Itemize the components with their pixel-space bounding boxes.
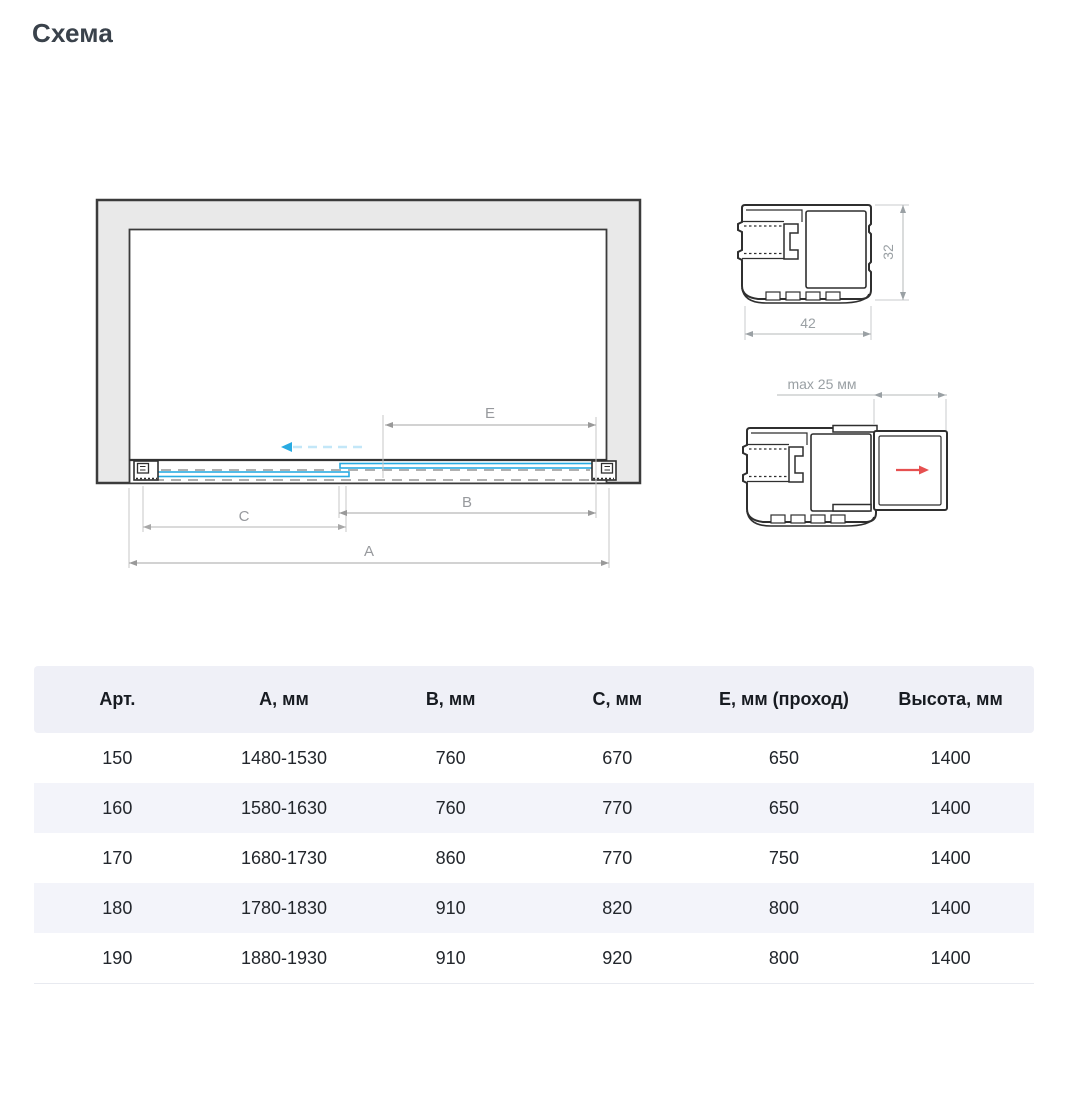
cell-e: 650 <box>701 798 868 819</box>
page-title: Схема <box>32 18 113 49</box>
profile-diagrams: 32 42 <box>700 185 990 540</box>
cell-e: 800 <box>701 948 868 969</box>
cell-b: 760 <box>367 798 534 819</box>
table-row: 150 1480-1530 760 670 650 1400 <box>34 733 1034 783</box>
table-row: 160 1580-1630 760 770 650 1400 <box>34 783 1034 833</box>
glass-panel-right <box>340 464 603 469</box>
dim-label-b: B <box>462 494 472 511</box>
scheme-section: Схема <box>0 0 1068 1103</box>
cell-c: 770 <box>534 798 701 819</box>
cell-c: 820 <box>534 898 701 919</box>
cell-height: 1400 <box>867 848 1034 869</box>
cell-a: 1580-1630 <box>201 798 368 819</box>
dim-label-e: E <box>485 405 495 422</box>
cell-e: 750 <box>701 848 868 869</box>
cell-b: 910 <box>367 948 534 969</box>
table-bottom-divider <box>34 983 1034 984</box>
dim-line-b: B <box>339 494 596 516</box>
table-header-row: Арт. А, мм В, мм С, мм Е, мм (проход) Вы… <box>34 666 1034 733</box>
cell-art: 150 <box>34 748 201 769</box>
cell-height: 1400 <box>867 748 1034 769</box>
dim-label-a: A <box>364 543 374 560</box>
cell-a: 1880-1930 <box>201 948 368 969</box>
cell-art: 190 <box>34 948 201 969</box>
profile-height-label: 32 <box>880 244 896 260</box>
cell-a: 1780-1830 <box>201 898 368 919</box>
col-header-c: С, мм <box>534 689 701 710</box>
col-header-art: Арт. <box>34 689 201 710</box>
cell-art: 160 <box>34 798 201 819</box>
profile-section-extended: max 25 мм <box>743 376 947 526</box>
dim-line-c: C <box>143 508 346 530</box>
dim-label-c: C <box>239 508 250 525</box>
cell-a: 1680-1730 <box>201 848 368 869</box>
profile-section-closed: 32 42 <box>738 205 909 340</box>
cell-a: 1480-1530 <box>201 748 368 769</box>
spec-table: Арт. А, мм В, мм С, мм Е, мм (проход) Вы… <box>34 666 1034 984</box>
wall-frame <box>97 200 640 483</box>
table-row: 190 1880-1930 910 920 800 1400 <box>34 933 1034 983</box>
cell-b: 860 <box>367 848 534 869</box>
wall-bracket-left <box>134 461 158 480</box>
glass-panel-left <box>147 472 349 477</box>
profile-max-gap-label: max 25 мм <box>787 376 856 392</box>
cell-height: 1400 <box>867 948 1034 969</box>
dim-line-a: A <box>129 543 609 566</box>
profile-width-label: 42 <box>800 315 816 331</box>
cell-height: 1400 <box>867 798 1034 819</box>
table-row: 180 1780-1830 910 820 800 1400 <box>34 883 1034 933</box>
col-header-a: А, мм <box>201 689 368 710</box>
col-header-b: В, мм <box>367 689 534 710</box>
cell-b: 760 <box>367 748 534 769</box>
col-header-height: Высота, мм <box>867 689 1034 710</box>
cell-c: 670 <box>534 748 701 769</box>
cell-c: 770 <box>534 848 701 869</box>
cell-e: 800 <box>701 898 868 919</box>
cell-e: 650 <box>701 748 868 769</box>
col-header-e: Е, мм (проход) <box>701 689 868 710</box>
cell-b: 910 <box>367 898 534 919</box>
main-diagram: E B C A <box>88 195 648 585</box>
table-row: 170 1680-1730 860 770 750 1400 <box>34 833 1034 883</box>
cell-art: 170 <box>34 848 201 869</box>
cell-art: 180 <box>34 898 201 919</box>
cell-height: 1400 <box>867 898 1034 919</box>
cell-c: 920 <box>534 948 701 969</box>
